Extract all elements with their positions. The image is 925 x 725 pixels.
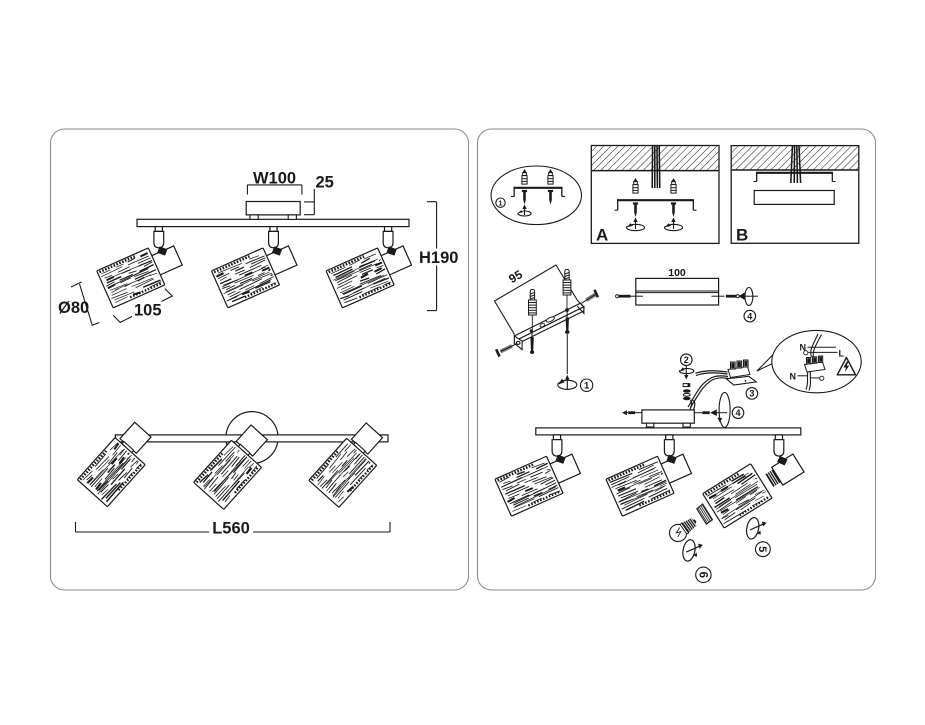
svg-text:Ø80: Ø80 [58, 299, 89, 317]
svg-text:3: 3 [749, 389, 754, 399]
svg-text:W100: W100 [253, 169, 296, 187]
svg-text:H190: H190 [419, 249, 458, 267]
svg-text:B: B [736, 226, 748, 245]
svg-text:A: A [596, 226, 608, 245]
svg-text:4: 4 [747, 311, 752, 321]
svg-text:6: 6 [696, 572, 708, 578]
svg-text:105: 105 [134, 302, 162, 320]
svg-text:L560: L560 [212, 520, 250, 538]
svg-text:5: 5 [756, 546, 768, 552]
svg-text:1: 1 [584, 381, 590, 392]
svg-text:N: N [790, 371, 797, 381]
svg-text:4: 4 [735, 408, 740, 418]
svg-text:1: 1 [498, 198, 502, 207]
svg-text:2: 2 [684, 355, 689, 365]
svg-text:25: 25 [316, 174, 334, 192]
svg-text:100: 100 [668, 267, 686, 279]
svg-text:L: L [839, 348, 845, 358]
